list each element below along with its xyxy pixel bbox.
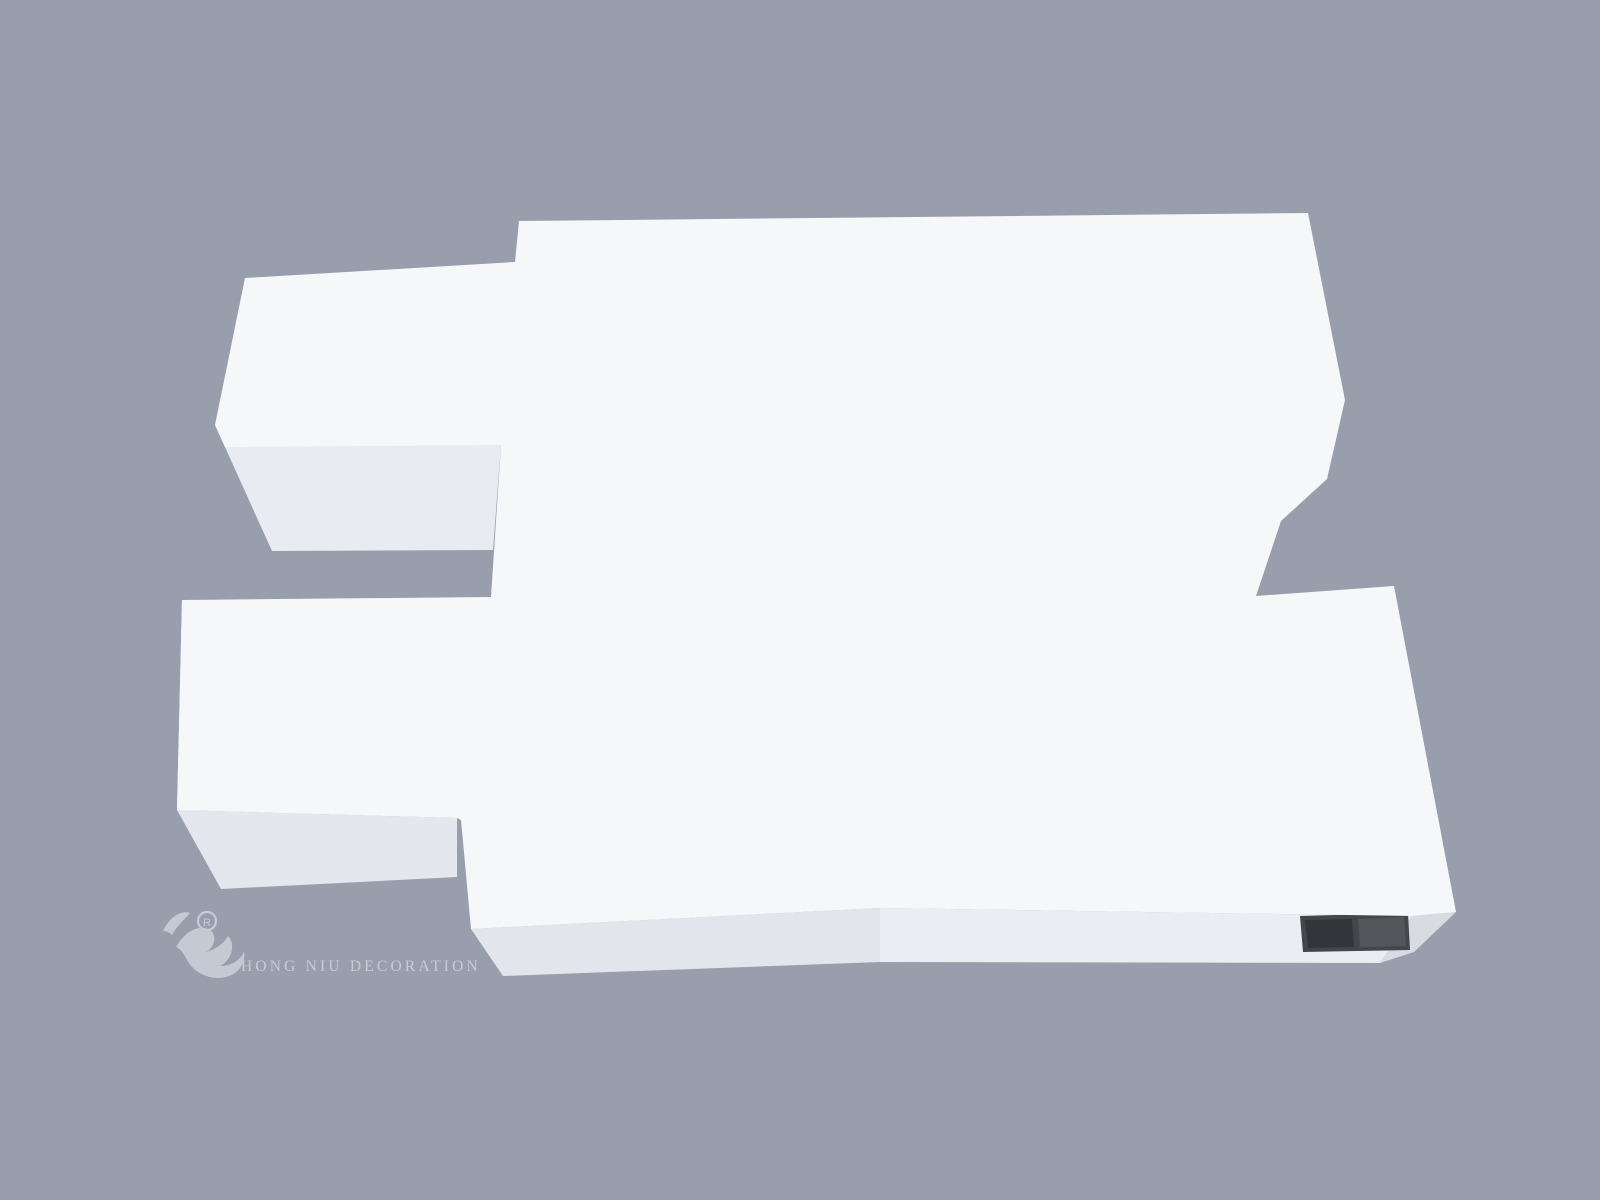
svg-text:R: R (203, 917, 211, 929)
svg-text:HONG NIU DECORATION: HONG NIU DECORATION (241, 958, 481, 975)
